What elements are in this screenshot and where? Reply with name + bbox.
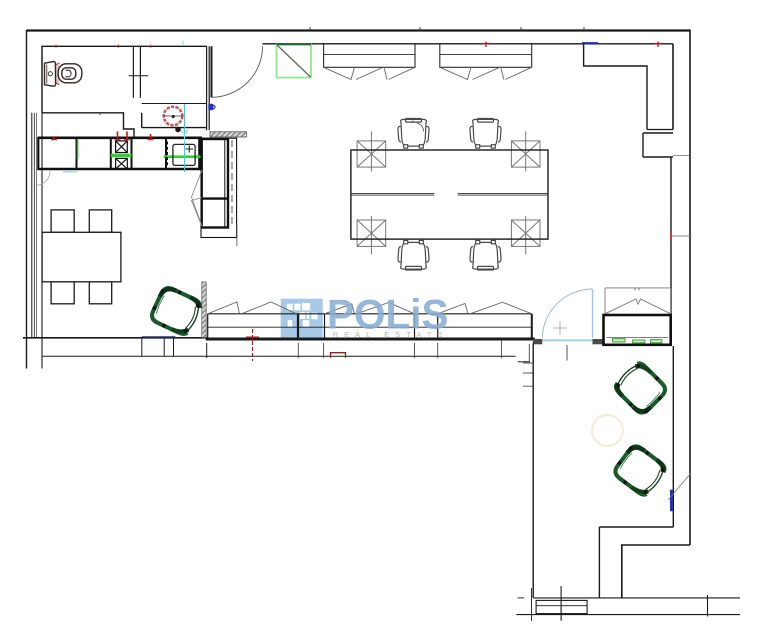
svg-text:REAL ESTATE: REAL ESTATE bbox=[333, 330, 449, 339]
